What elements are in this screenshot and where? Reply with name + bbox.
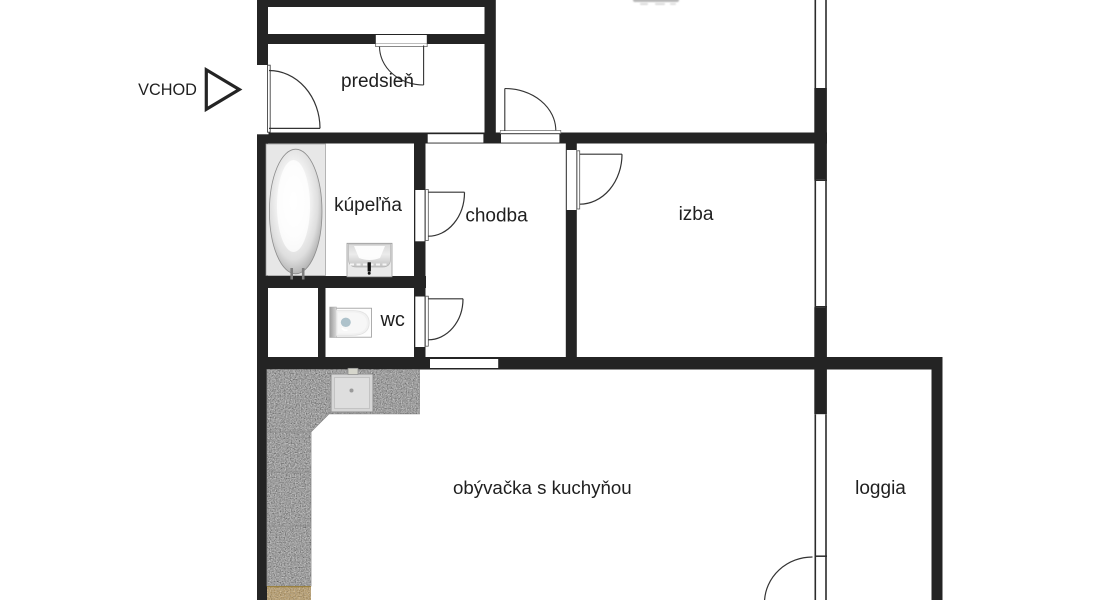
svg-text:obývačka s kuchyňou: obývačka s kuchyňou [453, 477, 632, 498]
svg-text:izba: izba [679, 204, 714, 225]
svg-text:predsieň: predsieň [341, 71, 414, 92]
svg-text:wc: wc [379, 309, 404, 331]
svg-text:chodba: chodba [465, 206, 528, 227]
svg-text:VCHOD: VCHOD [138, 81, 197, 99]
svg-text:kúpeľňa: kúpeľňa [334, 195, 402, 216]
svg-text:loggia: loggia [855, 478, 906, 499]
